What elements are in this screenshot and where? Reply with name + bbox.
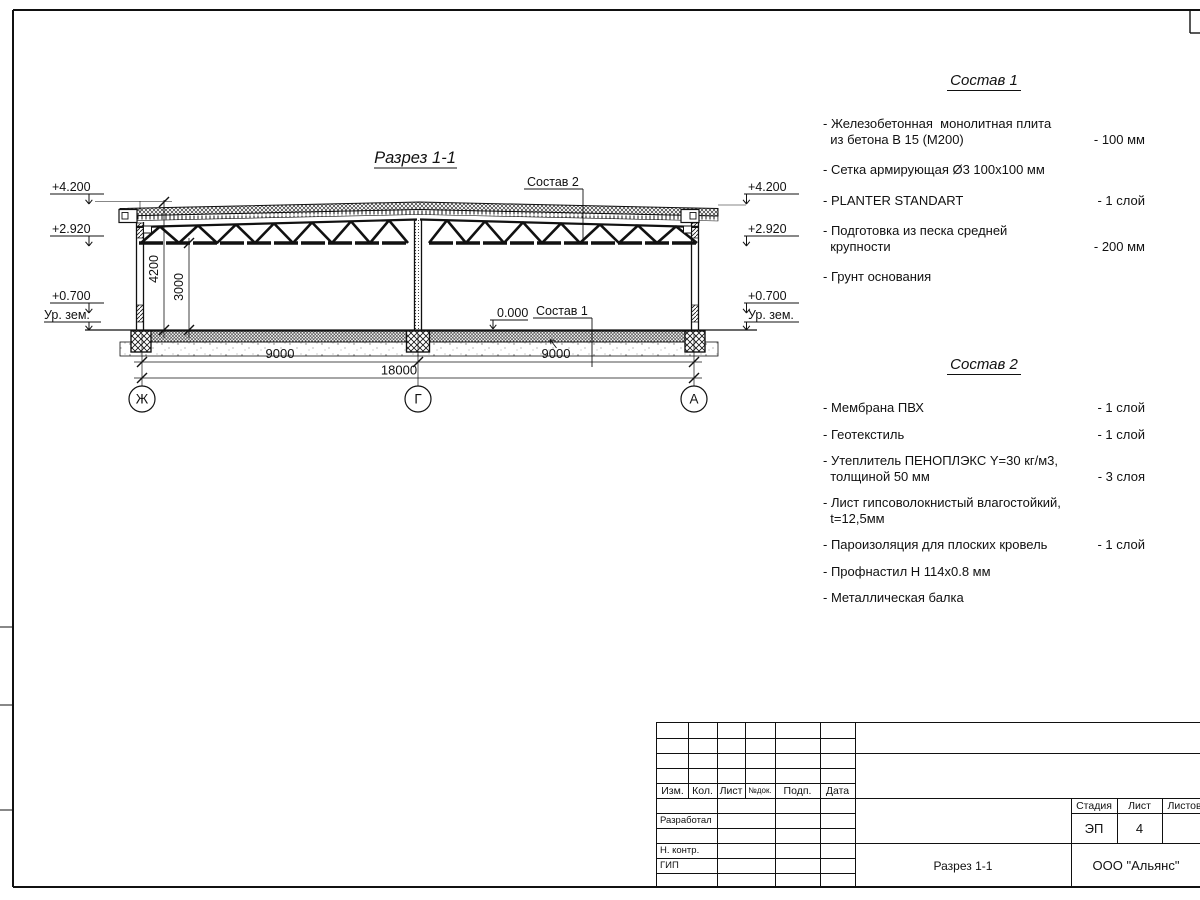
dim-4200: 4200 (147, 255, 161, 283)
elev-right-ground: Ур. зем. (748, 308, 794, 322)
dim-span-right: 9000 (542, 346, 571, 361)
dim-3000: 3000 (172, 273, 186, 301)
list-item: - Грунт основания (823, 269, 1145, 285)
row-nkontr: Н. контр. (657, 843, 720, 858)
col-list: Лист (717, 783, 745, 798)
list-item: - Пароизоляция для плоских кровель - 1 с… (823, 537, 1145, 553)
item-text: - Сетка армирующая Ø3 100х100 мм (823, 162, 1045, 178)
elev-right-truss: +2.920 (748, 222, 787, 236)
col-izm: Изм. (657, 783, 688, 798)
sheets-label: Листов (1162, 798, 1200, 813)
sheet-label: Лист (1117, 798, 1162, 813)
list-item: - Утеплитель ПЕНОПЛЭКС Y=30 кг/м3, толщи… (823, 453, 1145, 484)
truss-left (141, 220, 408, 243)
zero-level-text: 0.000 (497, 306, 528, 320)
item-value: - 3 слоя (1092, 469, 1145, 485)
elev-left-plinth: +0.700 (52, 289, 91, 303)
list-item: - Геотекстиль - 1 слой (823, 427, 1145, 443)
title-block: Изм. Кол. Лист №док. Подп. Дата Разработ… (656, 722, 1200, 887)
list-item: - Железобетонная монолитная плита из бет… (823, 116, 1145, 147)
elev-left-truss: +2.920 (52, 222, 91, 236)
item-value: - 200 мм (1088, 239, 1145, 255)
section-title-text: Разрез 1-1 (374, 149, 456, 167)
list-item: - Подготовка из песка средней крупности … (823, 223, 1145, 254)
list-item: - Лист гипсоволокнистый влагостойкий, t=… (823, 495, 1145, 526)
drawing-title: Разрез 1-1 (374, 149, 457, 168)
zero-level-mark (490, 320, 528, 329)
elev-right-top: +4.200 (748, 180, 787, 194)
composition-list-2: Состав 2 - Мембрана ПВХ - 1 слой - Геоте… (823, 356, 1145, 617)
item-value: - 1 слой (1091, 400, 1145, 416)
item-text: - Профнастил Н 114х0.8 мм (823, 564, 991, 580)
composition-list-1: Состав 1 - Железобетонная монолитная пли… (823, 72, 1145, 300)
axis-label-g: Г (414, 392, 422, 407)
row-razrabotal: Разработал (657, 813, 720, 828)
elev-left-top: +4.200 (52, 180, 91, 194)
list-item: - Металлическая балка (823, 590, 1145, 606)
sheet-value: 4 (1117, 813, 1162, 843)
doc-name: Разрез 1-1 (855, 843, 1071, 887)
list-item: - Профнастил Н 114х0.8 мм (823, 564, 1145, 580)
col-podp: Подп. (775, 783, 820, 798)
col-ndok: №док. (745, 783, 775, 798)
company-name: ООО "Альянс" (1071, 843, 1200, 887)
item-text: - Железобетонная монолитная плита из бет… (823, 116, 1051, 147)
row-gip: ГИП (657, 858, 720, 873)
item-text: - Утеплитель ПЕНОПЛЭКС Y=30 кг/м3, толщи… (823, 453, 1058, 484)
truss-right (429, 220, 697, 243)
composition-2-title: Состав 2 (823, 356, 1145, 373)
stage-value: ЭП (1071, 813, 1117, 843)
col-kol: Кол. (688, 783, 717, 798)
elev-right-plinth: +0.700 (748, 289, 787, 303)
item-text: - Подготовка из песка средней крупности (823, 223, 1007, 254)
item-value: - 1 слой (1091, 537, 1145, 553)
item-value: - 1 слой (1091, 427, 1145, 443)
dim-span-left: 9000 (266, 346, 295, 361)
item-value: - 1 слой (1091, 193, 1145, 209)
item-text: - PLANTER STANDART (823, 193, 963, 209)
elev-left-ground: Ур. зем. (44, 308, 90, 322)
list-item: - PLANTER STANDART - 1 слой (823, 193, 1145, 209)
list-item: - Сетка армирующая Ø3 100х100 мм (823, 162, 1145, 178)
drawing-sheet: { "drawing": { "title": "Разрез 1-1", "l… (0, 0, 1200, 900)
item-text: - Геотекстиль (823, 427, 904, 443)
item-text: - Пароизоляция для плоских кровель (823, 537, 1047, 553)
axis-label-a: А (689, 392, 698, 407)
stage-label: Стадия (1071, 798, 1117, 813)
axis-label-zh: Ж (136, 392, 149, 407)
sostav1-ref-label: Состав 1 (536, 304, 588, 318)
sostav2-ref-label: Состав 2 (527, 175, 579, 189)
list-item: - Мембрана ПВХ - 1 слой (823, 400, 1145, 416)
item-text: - Металлическая балка (823, 590, 964, 606)
composition-1-title: Состав 1 (823, 72, 1145, 89)
item-value: - 100 мм (1088, 132, 1145, 148)
item-text: - Лист гипсоволокнистый влагостойкий, t=… (823, 495, 1061, 526)
item-text: - Грунт основания (823, 269, 931, 285)
dim-total: 18000 (381, 363, 417, 378)
col-data: Дата (820, 783, 855, 798)
item-text: - Мембрана ПВХ (823, 400, 924, 416)
